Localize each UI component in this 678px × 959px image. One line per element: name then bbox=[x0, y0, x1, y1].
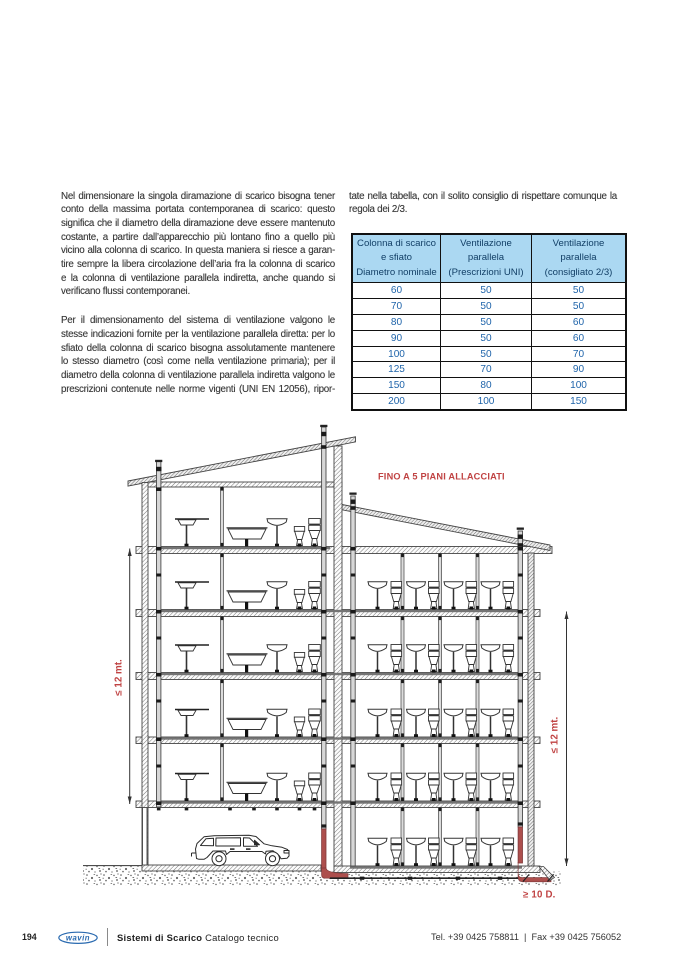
svg-text:≤ 12 mt.: ≤ 12 mt. bbox=[550, 717, 561, 754]
svg-text:≥ 10 D.: ≥ 10 D. bbox=[523, 890, 556, 901]
svg-text:wavin: wavin bbox=[66, 934, 90, 943]
svg-text:≤ 12 mt.: ≤ 12 mt. bbox=[114, 659, 125, 696]
svg-text:FINO A 5 PIANI ALLACCIATI: FINO A 5 PIANI ALLACCIATI bbox=[378, 472, 505, 482]
